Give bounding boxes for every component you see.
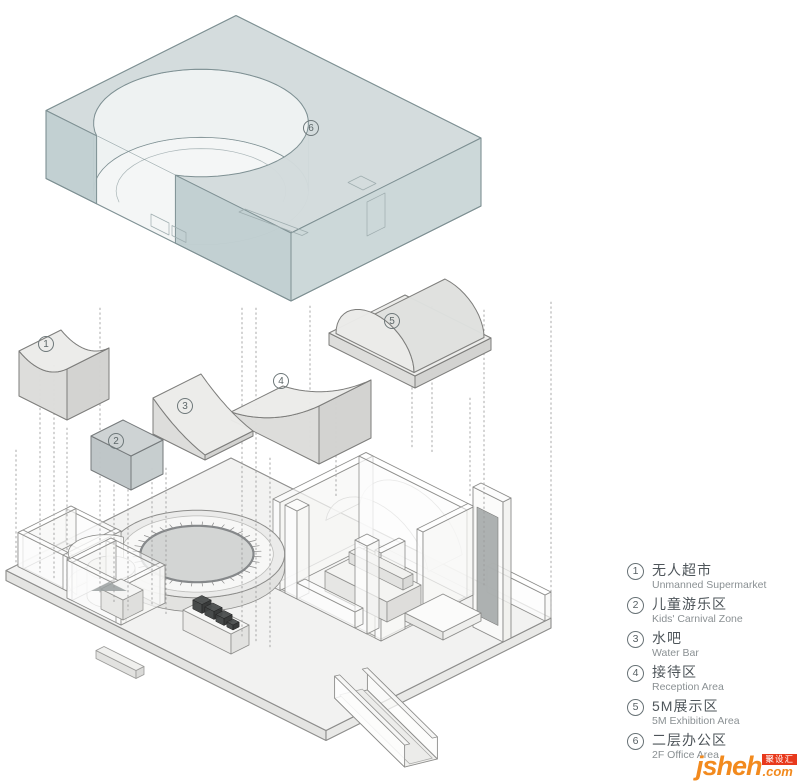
diagram-label-1: 1: [38, 336, 54, 352]
diagram-label-4: 4: [273, 373, 289, 389]
legend-label-en: Water Bar: [652, 647, 799, 659]
diagram-label-2: 2: [108, 433, 124, 449]
legend-number-3: 3: [627, 631, 644, 648]
legend-label-zh: 儿童游乐区: [652, 597, 799, 612]
supermarket-volume: [19, 330, 109, 420]
legend-number-1: 1: [627, 563, 644, 580]
legend-label-zh: 水吧: [652, 631, 799, 646]
legend-label-zh: 5M展示区: [652, 699, 799, 714]
reception-volume: [231, 380, 371, 464]
legend: 1 无人超市 Unmanned Supermarket 2 儿童游乐区 Kids…: [627, 563, 799, 767]
legend-label-en: Reception Area: [652, 681, 799, 693]
legend-item-water-bar: 3 水吧 Water Bar: [627, 631, 799, 659]
diagram-label-3: 3: [177, 398, 193, 414]
legend-label-zh: 无人超市: [652, 563, 799, 578]
exploded-axonometric-page: 1 2 3 4 5 6 1 无人超市 Unmanned Supermarket …: [0, 0, 800, 782]
legend-number-4: 4: [627, 665, 644, 682]
legend-label-en: 5M Exhibition Area: [652, 715, 799, 727]
legend-number-6: 6: [627, 733, 644, 750]
watermark-brand: jsheh: [696, 754, 762, 778]
legend-number-2: 2: [627, 597, 644, 614]
watermark-jsheh: jsheh 聚设汇 .com: [696, 754, 797, 778]
diagram-label-5: 5: [384, 313, 400, 329]
legend-item-supermarket: 1 无人超市 Unmanned Supermarket: [627, 563, 799, 591]
legend-label-zh: 接待区: [652, 665, 799, 680]
legend-label-en: Unmanned Supermarket: [652, 579, 799, 591]
legend-item-kids-zone: 2 儿童游乐区 Kids' Carnival Zone: [627, 597, 799, 625]
watermark-tld: .com: [762, 765, 792, 778]
legend-label-en: Kids' Carnival Zone: [652, 613, 799, 625]
legend-item-reception: 4 接待区 Reception Area: [627, 665, 799, 693]
legend-number-5: 5: [627, 699, 644, 716]
legend-label-zh: 二层办公区: [652, 733, 799, 748]
kids-zone-volume: [91, 420, 163, 490]
legend-item-exhibition: 5 5M展示区 5M Exhibition Area: [627, 699, 799, 727]
exhibition-volume-5m: [329, 279, 491, 388]
diagram-label-6: 6: [303, 120, 319, 136]
2f-office-slab: [46, 16, 481, 302]
